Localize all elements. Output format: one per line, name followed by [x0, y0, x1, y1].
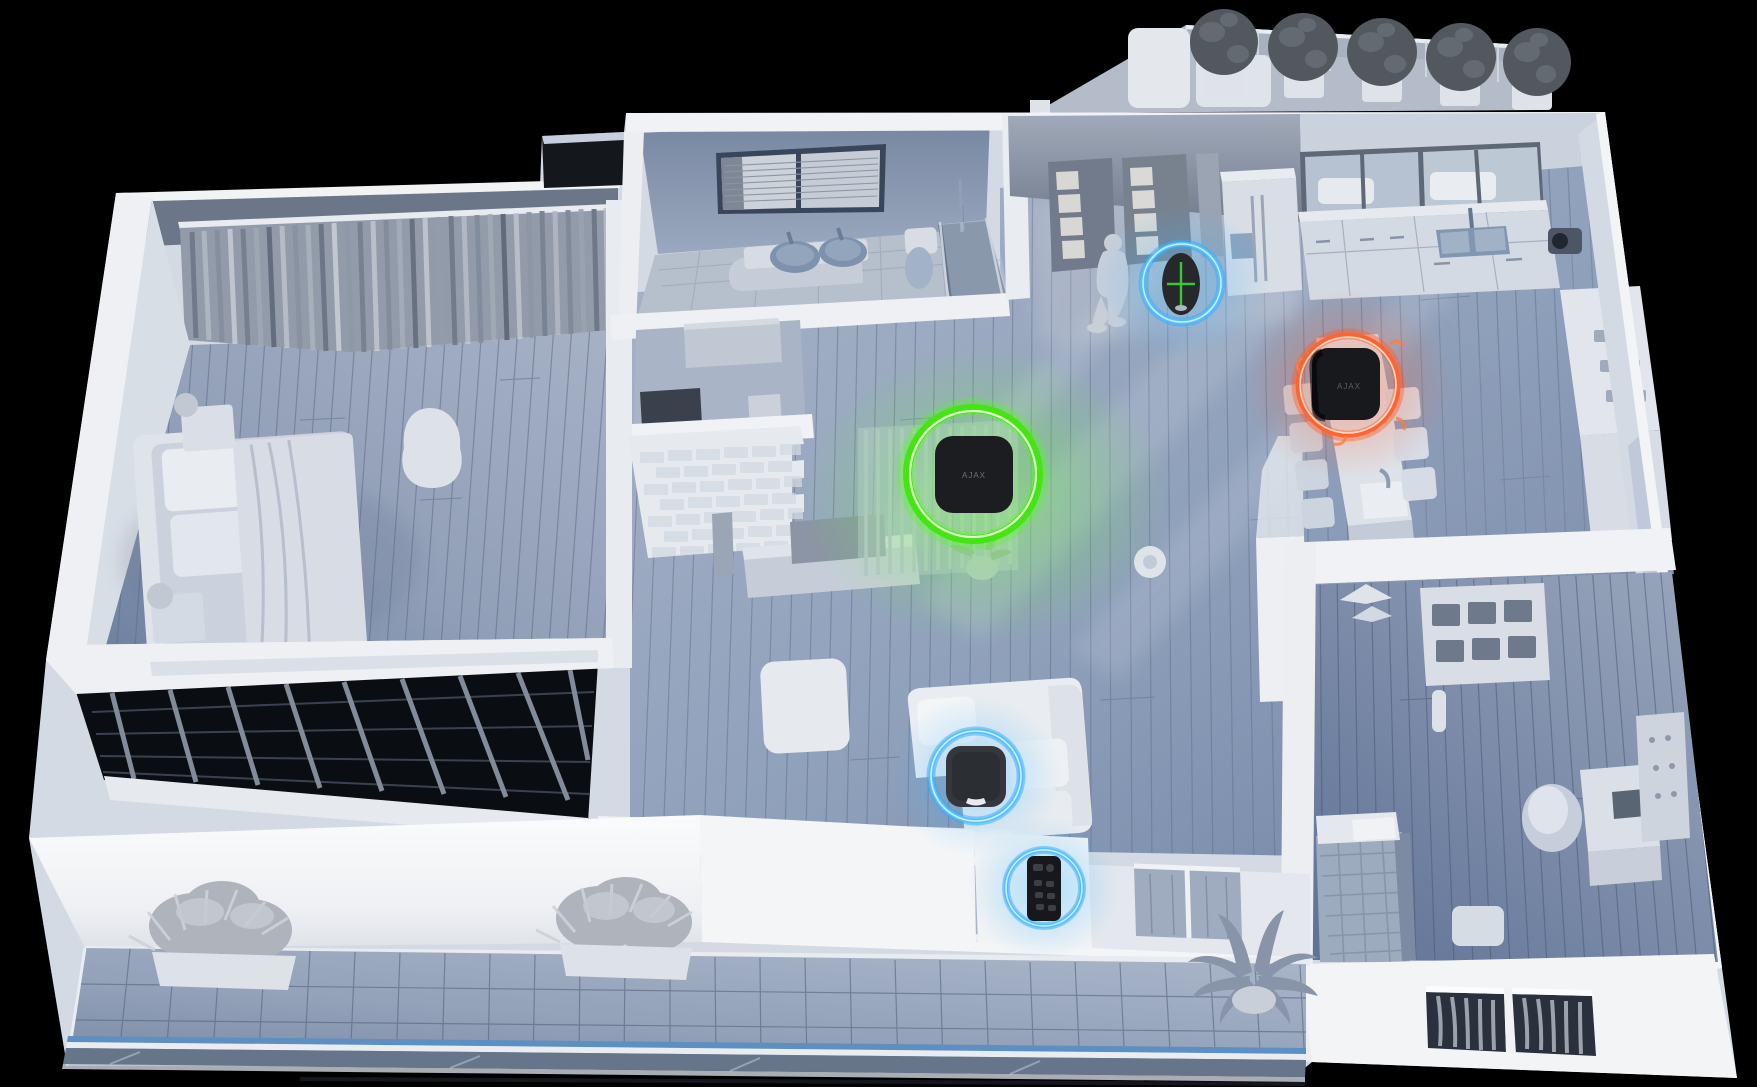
svg-text:AJAX: AJAX — [962, 471, 986, 480]
svg-text:AJAX: AJAX — [1337, 382, 1361, 391]
